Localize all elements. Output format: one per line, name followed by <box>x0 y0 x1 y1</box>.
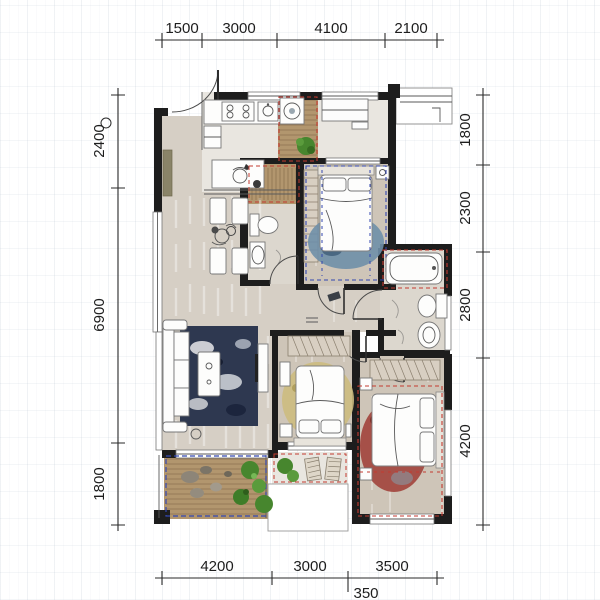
patio-plant <box>287 470 299 482</box>
dim-chain-top: 1500 3000 4100 2100 <box>155 20 444 48</box>
rug-pattern <box>235 339 251 349</box>
bath2-sink-icon <box>250 242 265 268</box>
dim-label-bottom-offset: 350 <box>353 585 378 600</box>
sofa-icon <box>163 320 189 432</box>
toilet2-icon <box>418 294 447 318</box>
dim-label-top-4: 2100 <box>394 20 427 37</box>
dim-label-bottom-2: 3000 <box>293 558 326 575</box>
stove-icon <box>222 102 254 121</box>
sofa-wall-glass <box>156 332 162 450</box>
washing-machine-icon <box>280 98 304 124</box>
bedroom2 <box>280 336 354 446</box>
ac-platform <box>396 88 452 124</box>
bed2-icon <box>294 366 346 446</box>
dim-label-left-2: 6900 <box>91 298 108 331</box>
bed3-icon <box>372 392 444 468</box>
bedroom2-dresser <box>280 362 290 386</box>
dim-label-bottom-1: 4200 <box>200 558 233 575</box>
utility-bench <box>352 122 368 129</box>
bedroom3-side-window <box>445 410 451 496</box>
dim-label-left-1: 2400 <box>91 124 108 157</box>
nightstand3-bottom <box>360 468 372 480</box>
dim-chain-bottom: 4200 3000 3500 350 <box>155 558 444 600</box>
nightstand-icon <box>376 166 389 179</box>
dim-label-right-4: 4200 <box>457 424 474 457</box>
kitchen-sink-icon <box>258 102 278 121</box>
dim-label-right-1: 1800 <box>457 113 474 146</box>
dim-label-left-3: 1800 <box>91 467 108 500</box>
rug-pattern <box>188 398 208 410</box>
dim-label-top-1: 1500 <box>165 20 198 37</box>
lounge-chair-icon2 <box>325 457 342 481</box>
nightstand2-right <box>346 424 351 437</box>
rug-pattern <box>226 404 246 416</box>
pedestal-sink-icon <box>418 322 440 348</box>
nightstand2-left <box>280 424 292 437</box>
rug-texture <box>391 471 413 485</box>
shower-drain-icon <box>253 180 261 188</box>
dim-label-right-2: 2300 <box>457 191 474 224</box>
lower-platform <box>268 484 348 531</box>
bathtub-icon <box>386 253 442 284</box>
dim-label-top-3: 4100 <box>314 20 347 37</box>
bed1-icon <box>318 166 374 251</box>
floor-plan-canvas: 1500 3000 4100 2100 2400 6900 1800 1800 … <box>0 0 600 600</box>
coffee-table-icon <box>198 352 220 396</box>
lounge-chair-icon <box>305 457 322 481</box>
dim-label-bottom-3: 3500 <box>375 558 408 575</box>
floor-plan-svg: 1500 3000 4100 2100 2400 6900 1800 1800 … <box>0 0 600 600</box>
entry-cabinet <box>163 150 172 196</box>
dim-chain-right: 1800 2300 2800 4200 <box>457 88 490 531</box>
dim-label-right-3: 2800 <box>457 288 474 321</box>
nightstand3-top <box>360 378 372 390</box>
dim-label-top-2: 3000 <box>222 20 255 37</box>
bedroom2-wardrobe <box>288 336 350 356</box>
dim-chain-left: 2400 6900 1800 <box>91 88 125 531</box>
